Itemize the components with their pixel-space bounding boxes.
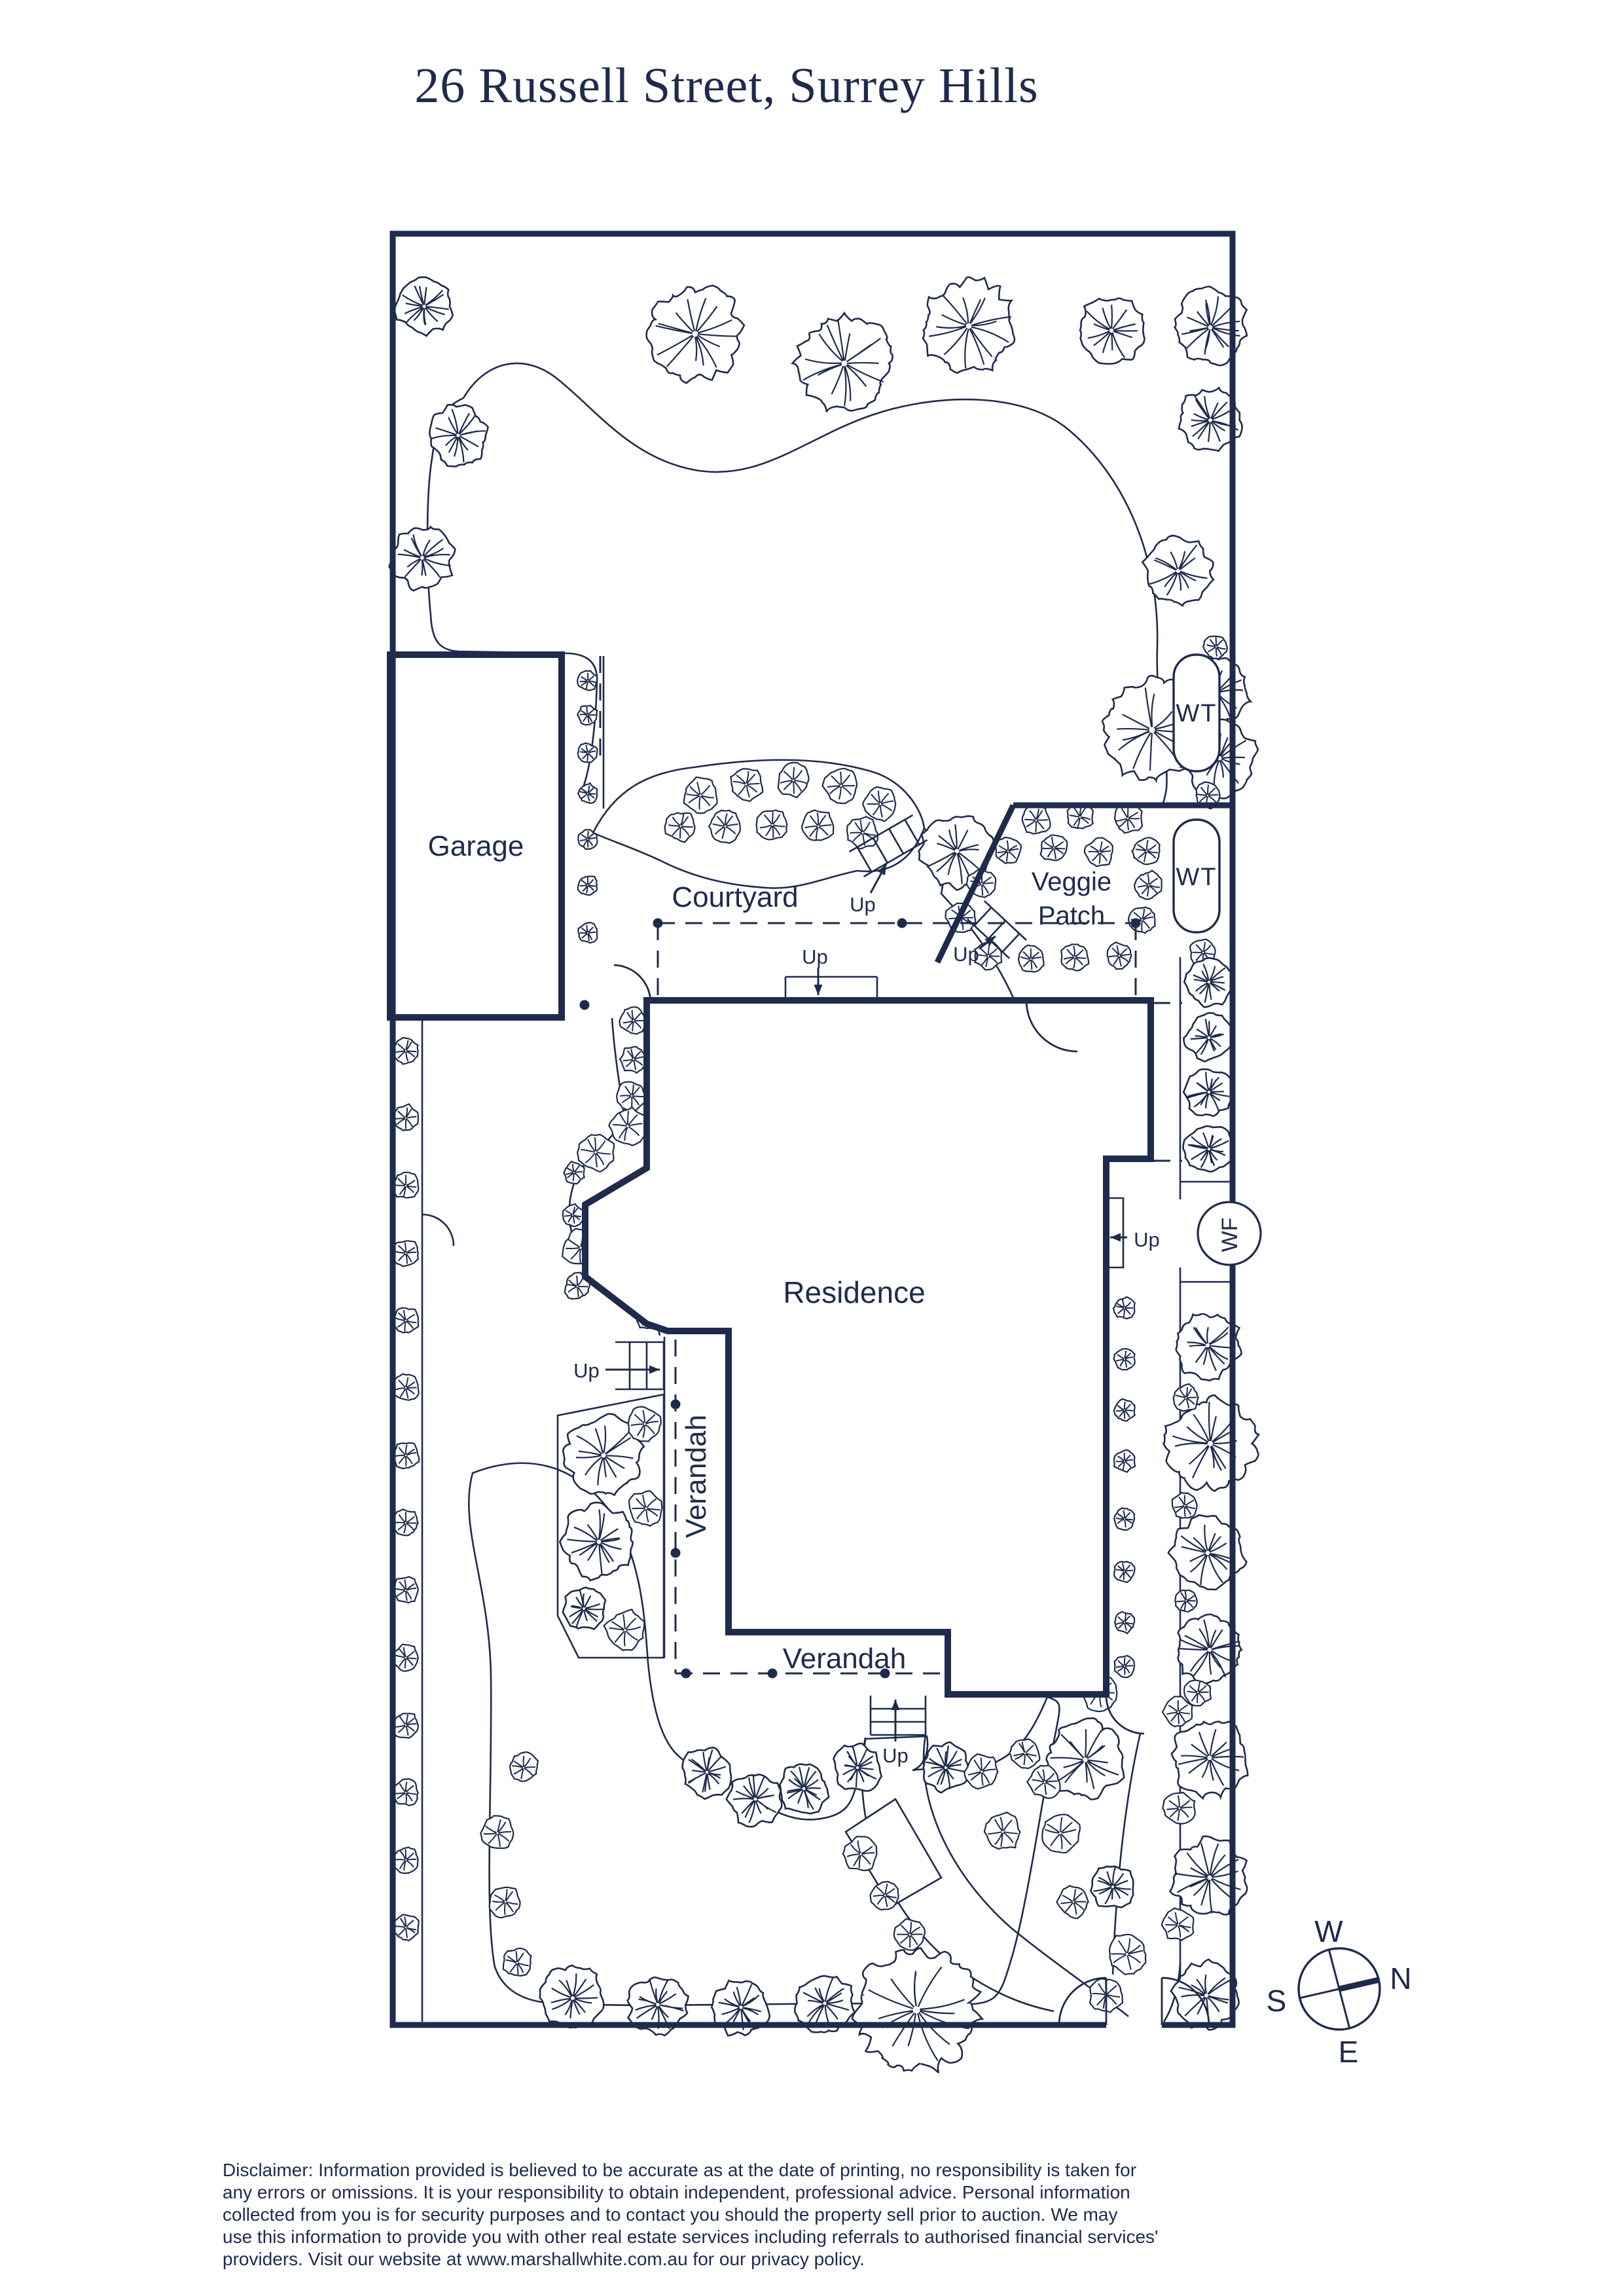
bush-icon (1162, 1793, 1195, 1824)
bush-icon (577, 706, 597, 725)
page: { "title": "26 Russell Street, Surrey Hi… (0, 0, 1622, 2296)
tree-icon (1184, 1013, 1233, 1061)
up-label-west: Up (573, 1359, 600, 1382)
bush-icon (393, 1374, 419, 1400)
tree-icon (1183, 1126, 1233, 1171)
bush-icon (1203, 636, 1227, 659)
bush-icon (393, 1713, 418, 1738)
veggie-patch-label-line1: Veggie (1032, 867, 1111, 896)
bush-icon (1109, 1935, 1146, 1975)
bush-icon (1172, 1493, 1197, 1518)
disclaimer-line: any errors or omissions. It is your resp… (223, 2181, 1296, 2204)
dashed-line-dot (768, 1669, 778, 1679)
veggie-patch-label-line2: Patch (1038, 902, 1105, 930)
bush-icon (578, 743, 598, 763)
up-label-entry: Up (802, 945, 828, 968)
bush-icon (391, 1915, 418, 1941)
bush-icon (1085, 838, 1113, 867)
tree-icon (1175, 287, 1247, 365)
bush-icon (617, 1082, 645, 1111)
tree-icon (1183, 1069, 1232, 1116)
bush-icon (1174, 1384, 1198, 1411)
bush-icon (1162, 1908, 1194, 1941)
tree-icon (389, 527, 456, 591)
bush-icon (1184, 1680, 1211, 1705)
bush-icon (393, 1645, 418, 1671)
compass-rose (1299, 1948, 1380, 2030)
bush-icon (392, 1241, 418, 1266)
bush-icon (802, 810, 833, 840)
bush-icon (563, 1204, 583, 1226)
dashed-line-dot (897, 919, 907, 928)
bush-icon (609, 1107, 647, 1146)
water-tank-2-label: WT (1176, 864, 1217, 891)
bush-icon (578, 783, 597, 803)
bush-icon (1132, 837, 1159, 864)
dashed-line-dot (681, 1669, 691, 1679)
up-label-veggie: Up (953, 943, 979, 966)
bush-icon (1113, 1297, 1135, 1319)
residence-label: Residence (783, 1275, 925, 1309)
water-feature-label: WF (1217, 1218, 1242, 1252)
bush-icon (620, 1047, 646, 1073)
tree-icon (924, 1742, 971, 1793)
compass-south-label: S (1267, 1984, 1287, 2018)
bush-icon (577, 671, 597, 691)
dashed-line-dot (580, 1000, 590, 1010)
courtyard-label: Courtyard (672, 881, 798, 913)
bush-icon (619, 1007, 645, 1034)
tree-icon (683, 1747, 731, 1799)
dashed-line-dot (671, 1400, 681, 1410)
verandah-west-label: Verandah (680, 1415, 712, 1538)
bush-icon (578, 876, 597, 895)
bush-icon (564, 1161, 584, 1184)
disclaimer-line: Disclaimer: Information provided is beli… (223, 2159, 1296, 2181)
water-tank-1-label: WT (1176, 700, 1217, 727)
bush-icon (1114, 1508, 1134, 1530)
bush-icon (1042, 1815, 1080, 1853)
tree-icon (1080, 299, 1145, 364)
tree-icon (647, 285, 744, 383)
bush-icon (393, 1779, 418, 1806)
dashed-line-dot (653, 919, 663, 928)
steps-west (615, 1342, 665, 1389)
tree-icon (1172, 1722, 1248, 1798)
compass-west-label: W (1314, 1914, 1343, 1948)
bush-icon (894, 1919, 925, 1950)
bush-icon (393, 1443, 420, 1468)
up-label-courtyard: Up (850, 893, 876, 916)
tree-icon (1184, 958, 1232, 1007)
site-plan-drawing: Garage Courtyard Veggie Patch Residence … (0, 0, 1622, 2296)
bush-icon (393, 1509, 418, 1535)
bush-icon (964, 1754, 998, 1789)
up-arrow (814, 968, 823, 995)
up-label-south: Up (882, 1744, 909, 1767)
tree-icon (793, 313, 893, 412)
verandah-south-label: Verandah (783, 1643, 906, 1675)
bush-icon (1114, 1399, 1135, 1421)
bush-icon (843, 1836, 877, 1870)
tree-icon (1090, 1867, 1133, 1907)
bush-icon (1108, 942, 1132, 969)
bush-icon (578, 829, 597, 849)
bush-icon (392, 1173, 418, 1198)
bush-icon (510, 1752, 538, 1781)
tree-icon (852, 1948, 982, 2073)
tree-icon (833, 1743, 881, 1791)
tree-icon (563, 1588, 605, 1630)
disclaimer-line: providers. Visit our website at www.mars… (223, 2248, 1296, 2270)
bush-icon (1056, 1886, 1088, 1918)
tree-icon (540, 1965, 604, 2028)
bush-icon (1114, 1349, 1135, 1370)
bush-icon (503, 1948, 532, 1976)
bush-icon (1134, 871, 1162, 900)
compass-east-label: E (1339, 2035, 1359, 2069)
bush-icon (1041, 835, 1068, 861)
dashed-line-dot (1131, 919, 1141, 928)
bush-icon (578, 922, 597, 943)
bush-icon (984, 1812, 1020, 1849)
tree-icon (1171, 1959, 1239, 2030)
compass-north-label: N (1390, 1961, 1411, 1995)
bush-icon (480, 1816, 513, 1849)
disclaimer-line: use this information to provide you with… (223, 2226, 1296, 2248)
tree-icon (780, 1764, 829, 1814)
steps-south (871, 1696, 926, 1735)
residence-outline (585, 1000, 1151, 1694)
tree-icon (727, 1775, 782, 1827)
bush-icon (1061, 944, 1089, 970)
tree-icon (1142, 536, 1214, 606)
bush-icon (490, 1887, 520, 1918)
bush-icon (1115, 1612, 1134, 1633)
bush-icon (1018, 945, 1044, 972)
tree-icon (429, 405, 488, 466)
tree-icon (394, 277, 453, 336)
bush-icon (1115, 1656, 1134, 1677)
bush-icon (393, 1576, 418, 1603)
bush-icon (1022, 807, 1051, 834)
tree-icon (923, 277, 1015, 373)
entry-step (785, 977, 877, 999)
garage-label: Garage (428, 830, 524, 862)
bush-icon (1114, 1450, 1135, 1472)
disclaimer-line: collected from you is for security purpo… (223, 2204, 1296, 2226)
bush-icon (392, 1104, 418, 1130)
bush-icon (870, 1882, 898, 1910)
bush-icon (1175, 1590, 1197, 1612)
up-arrow (605, 1366, 660, 1374)
bush-icon (393, 1308, 419, 1333)
disclaimer-text: Disclaimer: Information provided is beli… (223, 2159, 1296, 2270)
bush-icon (1009, 1739, 1039, 1768)
bush-icon (1114, 1561, 1134, 1582)
up-label-east: Up (1134, 1228, 1160, 1251)
corridor-gate-arc (422, 1214, 454, 1246)
dashed-line-dot (671, 1548, 681, 1558)
up-arrow (1110, 1233, 1127, 1242)
bush-icon (757, 810, 787, 839)
